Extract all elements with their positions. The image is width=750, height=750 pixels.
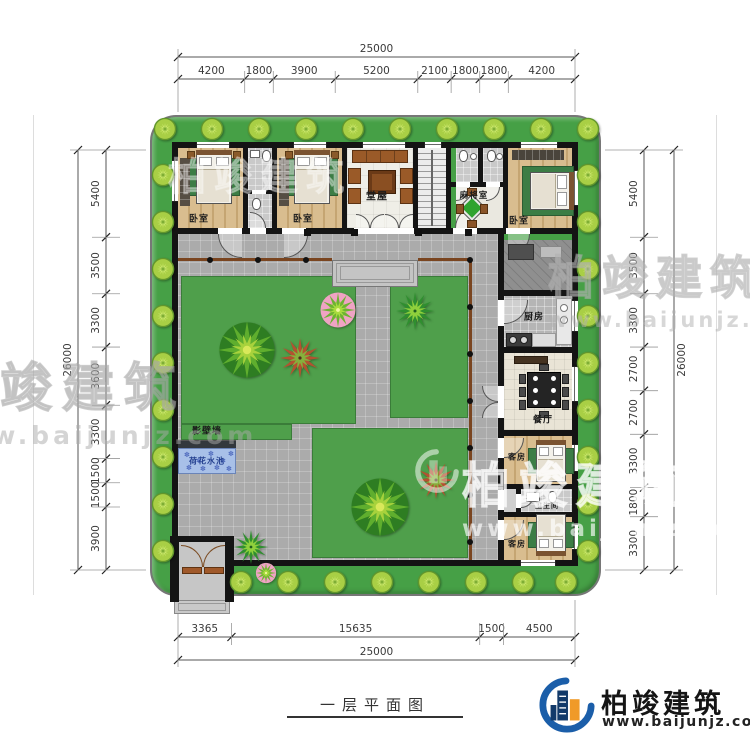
kitchen-counter bbox=[532, 333, 556, 347]
room-label-bedroom-mid: 卧室 bbox=[293, 212, 313, 225]
plate bbox=[551, 376, 556, 381]
armchair bbox=[348, 188, 361, 204]
room-label-mahjong: 麻将室 bbox=[460, 189, 489, 201]
hedge-shrub-icon bbox=[529, 117, 553, 141]
utility-unit bbox=[508, 244, 534, 260]
pillow bbox=[557, 175, 567, 189]
wardrobe bbox=[512, 150, 564, 160]
plate bbox=[533, 376, 538, 381]
tree-icon bbox=[396, 292, 434, 330]
hedge-shrub-icon bbox=[247, 117, 271, 141]
bed-blanket bbox=[538, 516, 563, 537]
railing-post bbox=[467, 257, 473, 263]
nightstand bbox=[233, 151, 241, 159]
hedge-shrub-icon bbox=[417, 570, 441, 594]
chair bbox=[519, 387, 526, 397]
hedge-shrub-icon bbox=[576, 163, 600, 187]
hedge-shrub-icon bbox=[153, 117, 177, 141]
watermark-logo-icon bbox=[414, 448, 460, 494]
pillow bbox=[553, 539, 563, 548]
pillow bbox=[314, 157, 327, 166]
chair bbox=[519, 400, 526, 410]
brand-url: www.baijunjz.com bbox=[602, 714, 750, 730]
hedge-shrub-icon bbox=[229, 570, 253, 594]
chair bbox=[519, 374, 526, 384]
room-label-guest-lower: 客房 bbox=[508, 539, 526, 550]
hedge-shrub-icon bbox=[576, 210, 600, 234]
tree-icon bbox=[280, 338, 320, 378]
gate-door-leaf bbox=[204, 567, 224, 574]
title-underline bbox=[287, 716, 463, 718]
label-lotus-pond: 荷花水池 bbox=[189, 456, 225, 467]
hedge-shrub-icon bbox=[576, 445, 600, 469]
chair bbox=[456, 204, 464, 214]
hedge-shrub-icon bbox=[576, 539, 600, 563]
hedge-shrub-icon bbox=[151, 539, 175, 563]
bed-headboard bbox=[196, 150, 232, 155]
room-label-bedroom-left: 卧室 bbox=[189, 212, 209, 225]
burner bbox=[509, 336, 517, 344]
sink bbox=[560, 316, 568, 324]
veranda-railing bbox=[418, 258, 470, 261]
hedge-shrub-icon bbox=[323, 570, 347, 594]
railing-post bbox=[303, 257, 309, 263]
floor-plan-canvas: ✽✽✽✽✽✽✽✽✽ 卧室 卧室 卧室 堂屋 麻将室 厨房 餐厅 客房 卫生间 客… bbox=[0, 0, 750, 750]
bed-blanket bbox=[538, 459, 563, 480]
burner bbox=[520, 336, 528, 344]
railing-post bbox=[207, 257, 213, 263]
hedge-shrub-icon bbox=[151, 398, 175, 422]
chair bbox=[467, 220, 477, 228]
room-label-bathroom: 卫生间 bbox=[535, 501, 559, 511]
brand-logo-icon bbox=[538, 676, 596, 734]
hedge-shrub-icon bbox=[151, 210, 175, 234]
hedge-shrub-icon bbox=[370, 570, 394, 594]
hedge-shrub-icon bbox=[576, 117, 600, 141]
railing-post bbox=[467, 492, 473, 498]
armchair bbox=[348, 168, 361, 184]
tree-icon bbox=[255, 562, 277, 584]
room-label-bedroom-right: 卧室 bbox=[509, 214, 529, 227]
hedge-shrub-icon bbox=[464, 570, 488, 594]
bed-blanket bbox=[296, 169, 327, 202]
tree-icon bbox=[319, 291, 357, 329]
plate bbox=[533, 388, 538, 393]
sink bbox=[560, 304, 568, 312]
bed-headboard bbox=[294, 150, 330, 155]
hedge-shrub-icon bbox=[576, 257, 600, 281]
nightstand bbox=[187, 151, 195, 159]
pillow bbox=[297, 157, 310, 166]
hedge-shrub-icon bbox=[482, 117, 506, 141]
hedge-shrub-icon bbox=[576, 304, 600, 328]
hedge-shrub-icon bbox=[276, 570, 300, 594]
railing-post bbox=[467, 304, 473, 310]
tree-icon bbox=[349, 476, 411, 538]
wardrobe bbox=[279, 158, 289, 206]
room-label-kitchen: 厨房 bbox=[524, 310, 544, 323]
hedge-shrub-icon bbox=[151, 304, 175, 328]
plate bbox=[551, 388, 556, 393]
hedge-shrub-icon bbox=[294, 117, 318, 141]
hedge-shrub-icon bbox=[511, 570, 535, 594]
pillow bbox=[539, 539, 549, 548]
railing-post bbox=[467, 398, 473, 404]
utility-unit bbox=[540, 246, 562, 258]
toilet-icon bbox=[487, 150, 496, 162]
bed-headboard bbox=[569, 172, 574, 210]
bed-headboard bbox=[536, 551, 566, 556]
hedge-shrub-icon bbox=[200, 117, 224, 141]
pillow bbox=[557, 192, 567, 206]
tree-icon bbox=[234, 530, 268, 564]
railing-post bbox=[255, 257, 261, 263]
washbasin bbox=[250, 150, 260, 158]
room-label-guest-upper: 客房 bbox=[508, 452, 526, 463]
railing-post bbox=[467, 351, 473, 357]
hedge-shrub-icon bbox=[151, 445, 175, 469]
bed-blanket bbox=[532, 174, 556, 208]
armchair bbox=[400, 168, 413, 184]
bed-blanket bbox=[198, 169, 229, 202]
bed-headboard bbox=[536, 440, 566, 445]
hedge-shrub-icon bbox=[151, 351, 175, 375]
plate bbox=[551, 400, 556, 405]
chair bbox=[562, 400, 569, 410]
toilet-icon bbox=[252, 198, 261, 210]
sofa bbox=[352, 150, 408, 163]
furniture-layer bbox=[0, 0, 750, 750]
chair bbox=[480, 204, 488, 214]
armchair bbox=[400, 188, 413, 204]
chair bbox=[539, 364, 549, 371]
washbasin bbox=[496, 153, 503, 160]
nightstand bbox=[285, 151, 293, 159]
pillow bbox=[553, 447, 563, 456]
hedge-shrub-icon bbox=[151, 163, 175, 187]
hedge-shrub-icon bbox=[576, 351, 600, 375]
pillow bbox=[539, 447, 549, 456]
drawing-title: 一层平面图 bbox=[287, 694, 463, 715]
room-label-dining: 餐厅 bbox=[533, 413, 553, 426]
wardrobe bbox=[180, 158, 190, 206]
plate bbox=[533, 400, 538, 405]
railing-post bbox=[467, 445, 473, 451]
sideboard bbox=[514, 356, 548, 364]
hedge-shrub-icon bbox=[435, 117, 459, 141]
hedge-shrub-icon bbox=[151, 257, 175, 281]
hedge-shrub-icon bbox=[554, 570, 578, 594]
pillow bbox=[216, 157, 229, 166]
hedge-shrub-icon bbox=[151, 492, 175, 516]
tree-icon bbox=[217, 320, 277, 380]
hedge-shrub-icon bbox=[341, 117, 365, 141]
toilet-icon bbox=[459, 150, 468, 162]
hedge-shrub-icon bbox=[576, 398, 600, 422]
washbasin bbox=[470, 153, 477, 160]
gate-door-leaf bbox=[182, 567, 202, 574]
hedge-shrub-icon bbox=[388, 117, 412, 141]
label-screen-wall: 影壁墙 bbox=[192, 424, 222, 437]
nightstand bbox=[331, 151, 339, 159]
chair bbox=[562, 387, 569, 397]
chair bbox=[562, 374, 569, 384]
hedge-shrub-icon bbox=[576, 492, 600, 516]
toilet-icon bbox=[262, 150, 271, 162]
room-label-hall: 堂屋 bbox=[366, 188, 388, 203]
railing-post bbox=[467, 539, 473, 545]
pillow bbox=[199, 157, 212, 166]
